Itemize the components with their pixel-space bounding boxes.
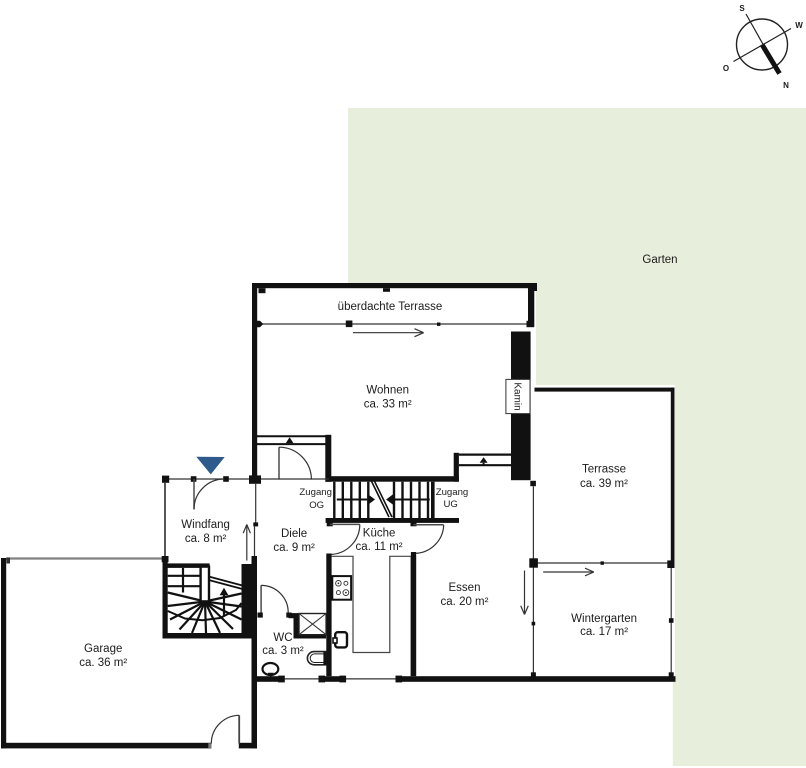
svg-text:S: S	[739, 4, 745, 13]
svg-text:Essen: Essen	[449, 582, 481, 594]
svg-text:ca. 20 m²: ca. 20 m²	[441, 596, 489, 608]
svg-text:OG: OG	[309, 500, 324, 511]
svg-text:Windfang: Windfang	[181, 519, 230, 531]
svg-text:W: W	[795, 21, 803, 30]
svg-text:Wohnen: Wohnen	[366, 385, 409, 397]
svg-text:überdachte Terrasse: überdachte Terrasse	[338, 301, 443, 313]
svg-text:ca. 33 m²: ca. 33 m²	[364, 398, 412, 410]
svg-text:Zugang: Zugang	[299, 487, 332, 498]
svg-text:Garage: Garage	[84, 643, 122, 655]
svg-text:ca. 8 m²: ca. 8 m²	[185, 533, 227, 545]
svg-text:UG: UG	[444, 499, 458, 510]
svg-text:N: N	[783, 81, 789, 90]
svg-text:Diele: Diele	[281, 528, 307, 540]
svg-text:ca. 11 m²: ca. 11 m²	[356, 541, 403, 553]
svg-text:ca. 3 m²: ca. 3 m²	[262, 645, 304, 657]
svg-text:ca. 39 m²: ca. 39 m²	[580, 478, 628, 490]
svg-text:WC: WC	[273, 632, 292, 644]
svg-text:Küche: Küche	[363, 528, 396, 540]
svg-text:ca. 36 m²: ca. 36 m²	[79, 657, 127, 669]
svg-text:ca. 17 m²: ca. 17 m²	[580, 626, 628, 638]
svg-text:Terrasse: Terrasse	[582, 464, 626, 476]
svg-text:Zugang: Zugang	[436, 487, 469, 498]
svg-text:ca. 9 m²: ca. 9 m²	[273, 542, 315, 554]
svg-text:Garten: Garten	[642, 254, 677, 266]
svg-text:O: O	[723, 64, 729, 73]
svg-text:Kamin: Kamin	[512, 382, 523, 410]
svg-text:Wintergarten: Wintergarten	[571, 613, 637, 625]
